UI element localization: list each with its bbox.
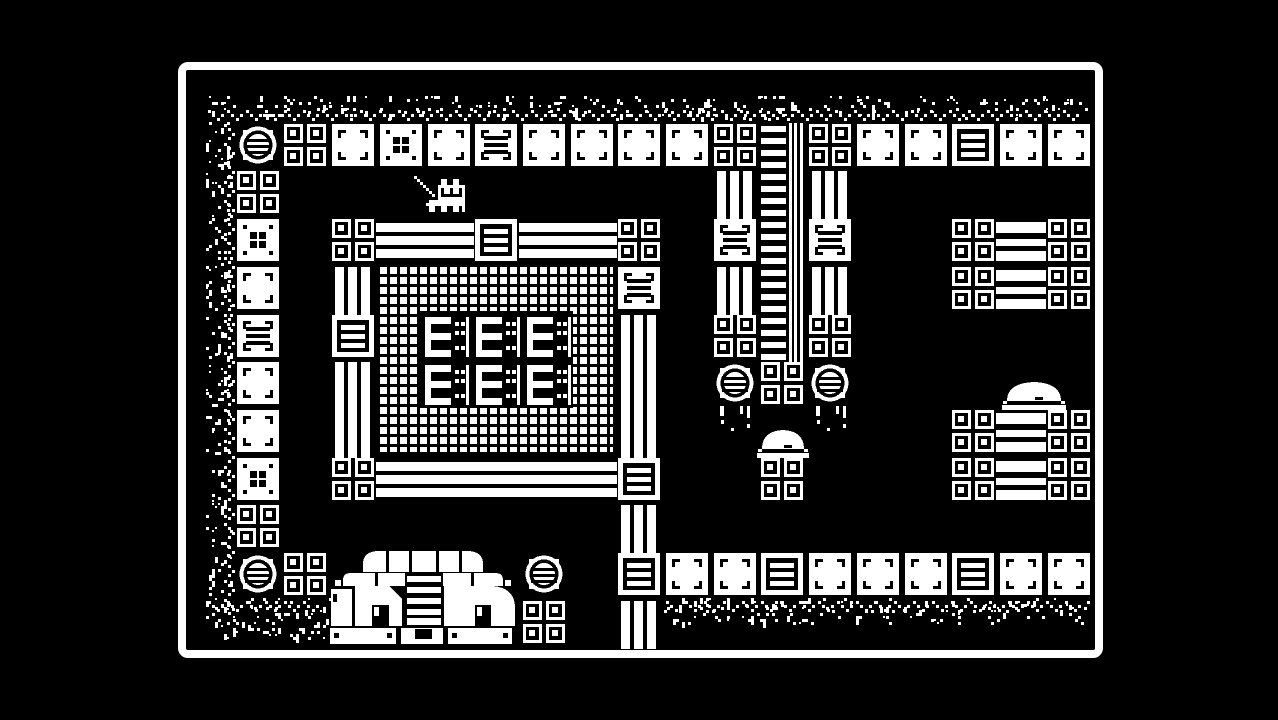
game-screen: Factory courtyard room: walled chamber w… [0,0,1278,720]
viewport-frame [178,62,1103,658]
